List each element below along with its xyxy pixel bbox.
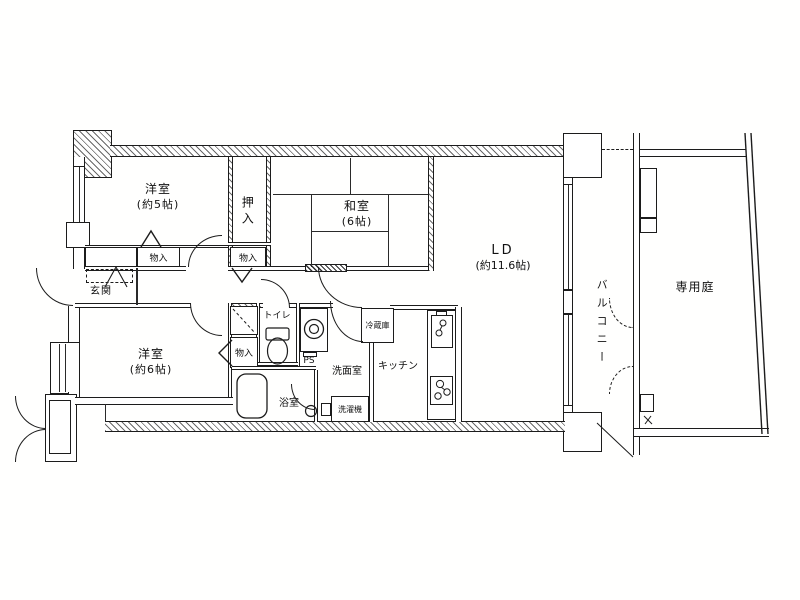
folding-door-mark-monoire3 bbox=[219, 340, 232, 366]
room-label-western6-size: (約6帖) bbox=[96, 364, 206, 376]
room-label-balcony: バルコニー bbox=[595, 250, 607, 398]
folding-door-mark-monoire1 bbox=[141, 231, 161, 247]
room-label-western5-size: (約5帖) bbox=[103, 199, 213, 211]
sink-faucet-circle bbox=[440, 320, 446, 326]
sink-faucet-circle bbox=[436, 330, 442, 336]
folding-door-mark-monoire2 bbox=[232, 268, 252, 282]
site-diagonal-line bbox=[597, 423, 633, 457]
overlay-shapes bbox=[0, 0, 800, 600]
stove-burner bbox=[435, 393, 441, 399]
bathtub bbox=[237, 374, 267, 418]
room-label-ld-name: LD bbox=[448, 244, 558, 258]
room-label-toilet: トイレ bbox=[256, 312, 298, 322]
room-label-bath: 浴室 bbox=[266, 398, 312, 409]
ps-pipe-outer bbox=[305, 320, 324, 339]
room-label-oshiire: 押入 bbox=[240, 184, 253, 240]
toilet-bowl bbox=[268, 338, 288, 364]
floor-plan: 物入 物入 物入 冷蔵庫 洗濯機 bbox=[0, 0, 800, 600]
sink-faucet-line bbox=[440, 326, 442, 330]
room-label-genkan: 玄関 bbox=[74, 286, 128, 297]
room-label-ld-size: (約11.6帖) bbox=[448, 260, 558, 272]
room-label-western5-name: 洋室 bbox=[103, 183, 213, 196]
room-label-western6-name: 洋室 bbox=[96, 348, 206, 361]
storage-dashed-diagonal bbox=[233, 309, 255, 333]
room-label-washitsu-name: 和室 bbox=[302, 200, 412, 213]
room-label-washitsu-size: (6帖) bbox=[302, 216, 412, 228]
room-label-kitchen: キッチン bbox=[368, 361, 428, 372]
stove-burner bbox=[436, 380, 443, 387]
stove-link-line bbox=[441, 387, 445, 390]
room-label-garden: 専用庭 bbox=[650, 281, 740, 294]
genkan-arc-mark bbox=[105, 267, 127, 287]
ps-pipe-inner bbox=[310, 325, 319, 334]
